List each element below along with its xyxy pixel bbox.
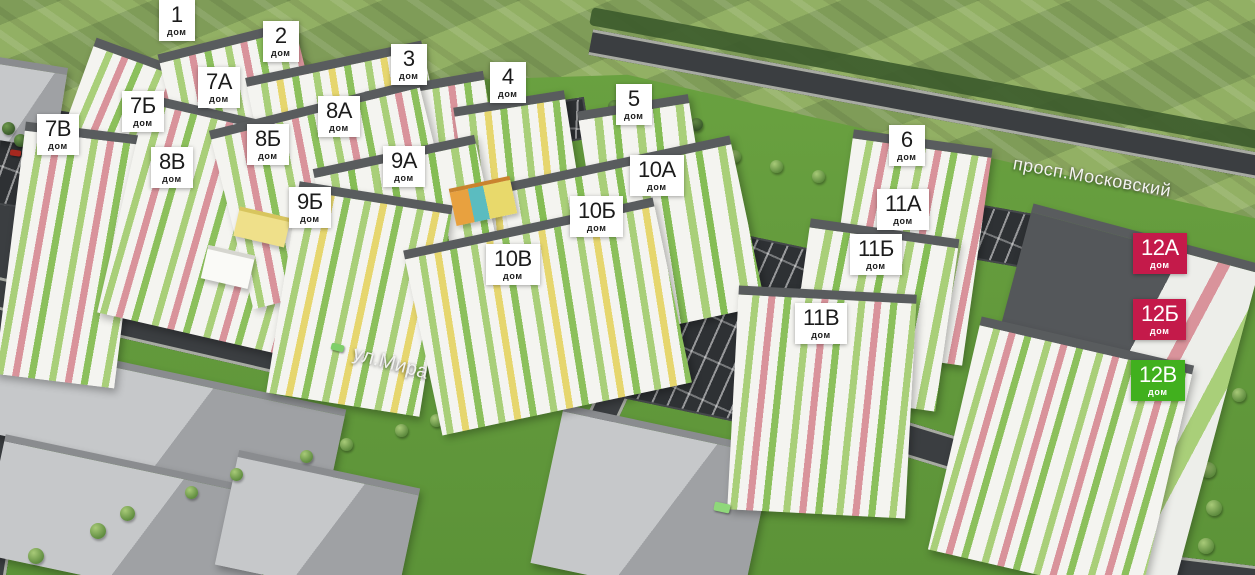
building-sub-label: дом [329, 123, 349, 133]
building-label-3[interactable]: 3 дом [391, 44, 427, 85]
building-label-5[interactable]: 5 дом [616, 84, 652, 125]
building-sub-label: дом [1150, 326, 1170, 336]
building-number: 8Б [255, 127, 281, 150]
tree [90, 523, 106, 539]
building-number: 7Б [130, 94, 156, 117]
building-number: 11Б [858, 237, 894, 260]
building-sub-label: дом [258, 151, 278, 161]
tree [1198, 538, 1214, 554]
building-label-10a[interactable]: 10А дом [630, 155, 684, 196]
building-sub-label: дом [893, 216, 913, 226]
building-sub-label: дом [394, 173, 414, 183]
building-sub-label: дом [503, 271, 523, 281]
building-label-2[interactable]: 2 дом [263, 21, 299, 62]
building-label-7a[interactable]: 7А дом [198, 67, 240, 108]
building-sub-label: дом [1150, 260, 1170, 270]
building-number: 10В [494, 247, 532, 270]
building-number: 8А [326, 99, 352, 122]
building-number: 6 [901, 128, 913, 151]
tree [770, 160, 783, 173]
tree [395, 424, 408, 437]
building-sub-label: дом [209, 94, 229, 104]
tree [120, 506, 135, 521]
building-number: 5 [628, 87, 640, 110]
building-number: 12В [1139, 363, 1177, 386]
tree [812, 170, 825, 183]
masterplan-map: ул.Мира просп.Московский 1 дом 2 дом 3 д… [0, 0, 1255, 575]
building-sub-label: дом [300, 214, 320, 224]
building-label-12v[interactable]: 12В дом [1131, 360, 1185, 401]
building-sub-label: дом [866, 261, 886, 271]
building-number: 12А [1141, 236, 1179, 259]
building-label-4[interactable]: 4 дом [490, 62, 526, 103]
building-sub-label: дом [48, 141, 68, 151]
building-label-8b[interactable]: 8Б дом [247, 124, 289, 165]
tree [300, 450, 313, 463]
building-number: 4 [502, 65, 514, 88]
tree [1232, 388, 1246, 402]
building-label-11b[interactable]: 11Б дом [850, 234, 902, 275]
building-sub-label: дом [811, 330, 831, 340]
building-label-10v[interactable]: 10В дом [486, 244, 540, 285]
building-sub-label: дом [133, 118, 153, 128]
building-label-12a[interactable]: 12А дом [1133, 233, 1187, 274]
tree [28, 548, 44, 564]
building-sub-label: дом [1148, 387, 1168, 397]
tree [1206, 500, 1222, 516]
building-sub-label: дом [162, 174, 182, 184]
building-number: 10А [638, 158, 676, 181]
tree [185, 486, 198, 499]
building-number: 8В [159, 150, 185, 173]
building-number: 1 [171, 3, 183, 26]
building-sub-label: дом [167, 27, 187, 37]
building-sub-label: дом [647, 182, 667, 192]
tree [230, 468, 243, 481]
building-label-8v[interactable]: 8В дом [151, 147, 193, 188]
building-number: 3 [403, 47, 415, 70]
building-sub-label: дом [587, 223, 607, 233]
building-number: 9Б [297, 190, 323, 213]
building-label-11a[interactable]: 11А дом [877, 189, 929, 230]
building-number: 7А [206, 70, 232, 93]
building-sub-label: дом [624, 111, 644, 121]
building-number: 10Б [578, 199, 615, 222]
building-number: 12Б [1141, 302, 1178, 325]
building-label-1[interactable]: 1 дом [159, 0, 195, 41]
tree [2, 122, 15, 135]
building-number: 9А [391, 149, 417, 172]
building-label-12b[interactable]: 12Б дом [1133, 299, 1186, 340]
building-label-9b[interactable]: 9Б дом [289, 187, 331, 228]
building-sub-label: дом [399, 71, 419, 81]
tree [340, 438, 353, 451]
building-label-10b[interactable]: 10Б дом [570, 196, 623, 237]
building-label-8a[interactable]: 8А дом [318, 96, 360, 137]
building-label-7v[interactable]: 7В дом [37, 114, 79, 155]
building-number: 7В [45, 117, 71, 140]
building-label-7b[interactable]: 7Б дом [122, 91, 164, 132]
building-sub-label: дом [271, 48, 291, 58]
building-label-9a[interactable]: 9А дом [383, 146, 425, 187]
building-sub-label: дом [897, 152, 917, 162]
building-number: 11В [803, 306, 839, 329]
building-label-6[interactable]: 6 дом [889, 125, 925, 166]
building-sub-label: дом [498, 89, 518, 99]
building-number: 2 [275, 24, 287, 47]
building-label-11v[interactable]: 11В дом [795, 303, 847, 344]
building-number: 11А [885, 192, 921, 215]
